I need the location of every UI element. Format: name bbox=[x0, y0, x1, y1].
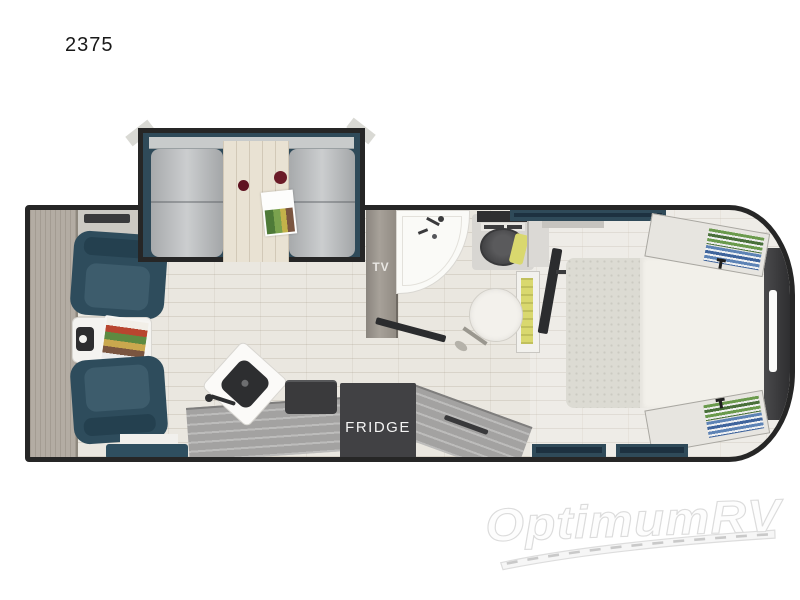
reading-light-icon bbox=[718, 398, 723, 408]
front-cabinet bbox=[30, 210, 78, 457]
fridge-label: FRIDGE bbox=[340, 419, 416, 436]
bedroom-window-bottom-right bbox=[616, 444, 688, 457]
angled-counter bbox=[396, 384, 533, 462]
optimumrv-watermark: OptimumRV bbox=[468, 478, 800, 599]
shower-curve bbox=[402, 216, 462, 286]
menu-card bbox=[261, 189, 297, 236]
entry-step bbox=[106, 444, 188, 459]
table-foot bbox=[453, 339, 469, 354]
dinette-bench-left bbox=[151, 149, 223, 257]
slideout-frame bbox=[143, 257, 223, 262]
chair-cushion bbox=[84, 364, 151, 412]
window-glass bbox=[620, 447, 684, 453]
dinette-bench-right bbox=[289, 149, 355, 257]
model-number: 2375 bbox=[65, 34, 114, 57]
bed-blanket bbox=[566, 258, 642, 408]
tv-label: TV bbox=[366, 260, 396, 274]
shower-control-icon bbox=[432, 234, 437, 239]
menu-picture bbox=[265, 208, 295, 235]
decor-item bbox=[274, 171, 287, 184]
bedroom-window-bottom-left bbox=[532, 444, 606, 457]
slideout-frame bbox=[289, 257, 360, 262]
bedroom-window-top bbox=[510, 210, 666, 221]
window-slot bbox=[84, 214, 130, 223]
window-glass bbox=[514, 213, 662, 217]
lounge-chair-bottom bbox=[69, 355, 169, 445]
decor-item bbox=[238, 180, 249, 191]
watermark-text: OptimumRV bbox=[485, 489, 785, 551]
bedroom-shelf bbox=[542, 221, 604, 228]
refrigerator: FRIDGE bbox=[340, 383, 416, 462]
dinette-slideout bbox=[138, 128, 365, 262]
pedestal-table bbox=[469, 288, 523, 342]
chair-cushion bbox=[84, 263, 151, 311]
table-handle bbox=[76, 327, 94, 351]
bed-mattress bbox=[640, 258, 764, 408]
faucet-base bbox=[205, 394, 213, 402]
drawer-handle bbox=[444, 415, 489, 435]
shower-head-icon bbox=[438, 216, 444, 222]
floorplan-page: 2375 FRIDGE TV bbox=[0, 0, 800, 600]
rear-wall-cap bbox=[764, 248, 790, 420]
window-glass bbox=[536, 447, 602, 453]
rear-window bbox=[769, 290, 777, 372]
cooktop bbox=[285, 380, 337, 414]
